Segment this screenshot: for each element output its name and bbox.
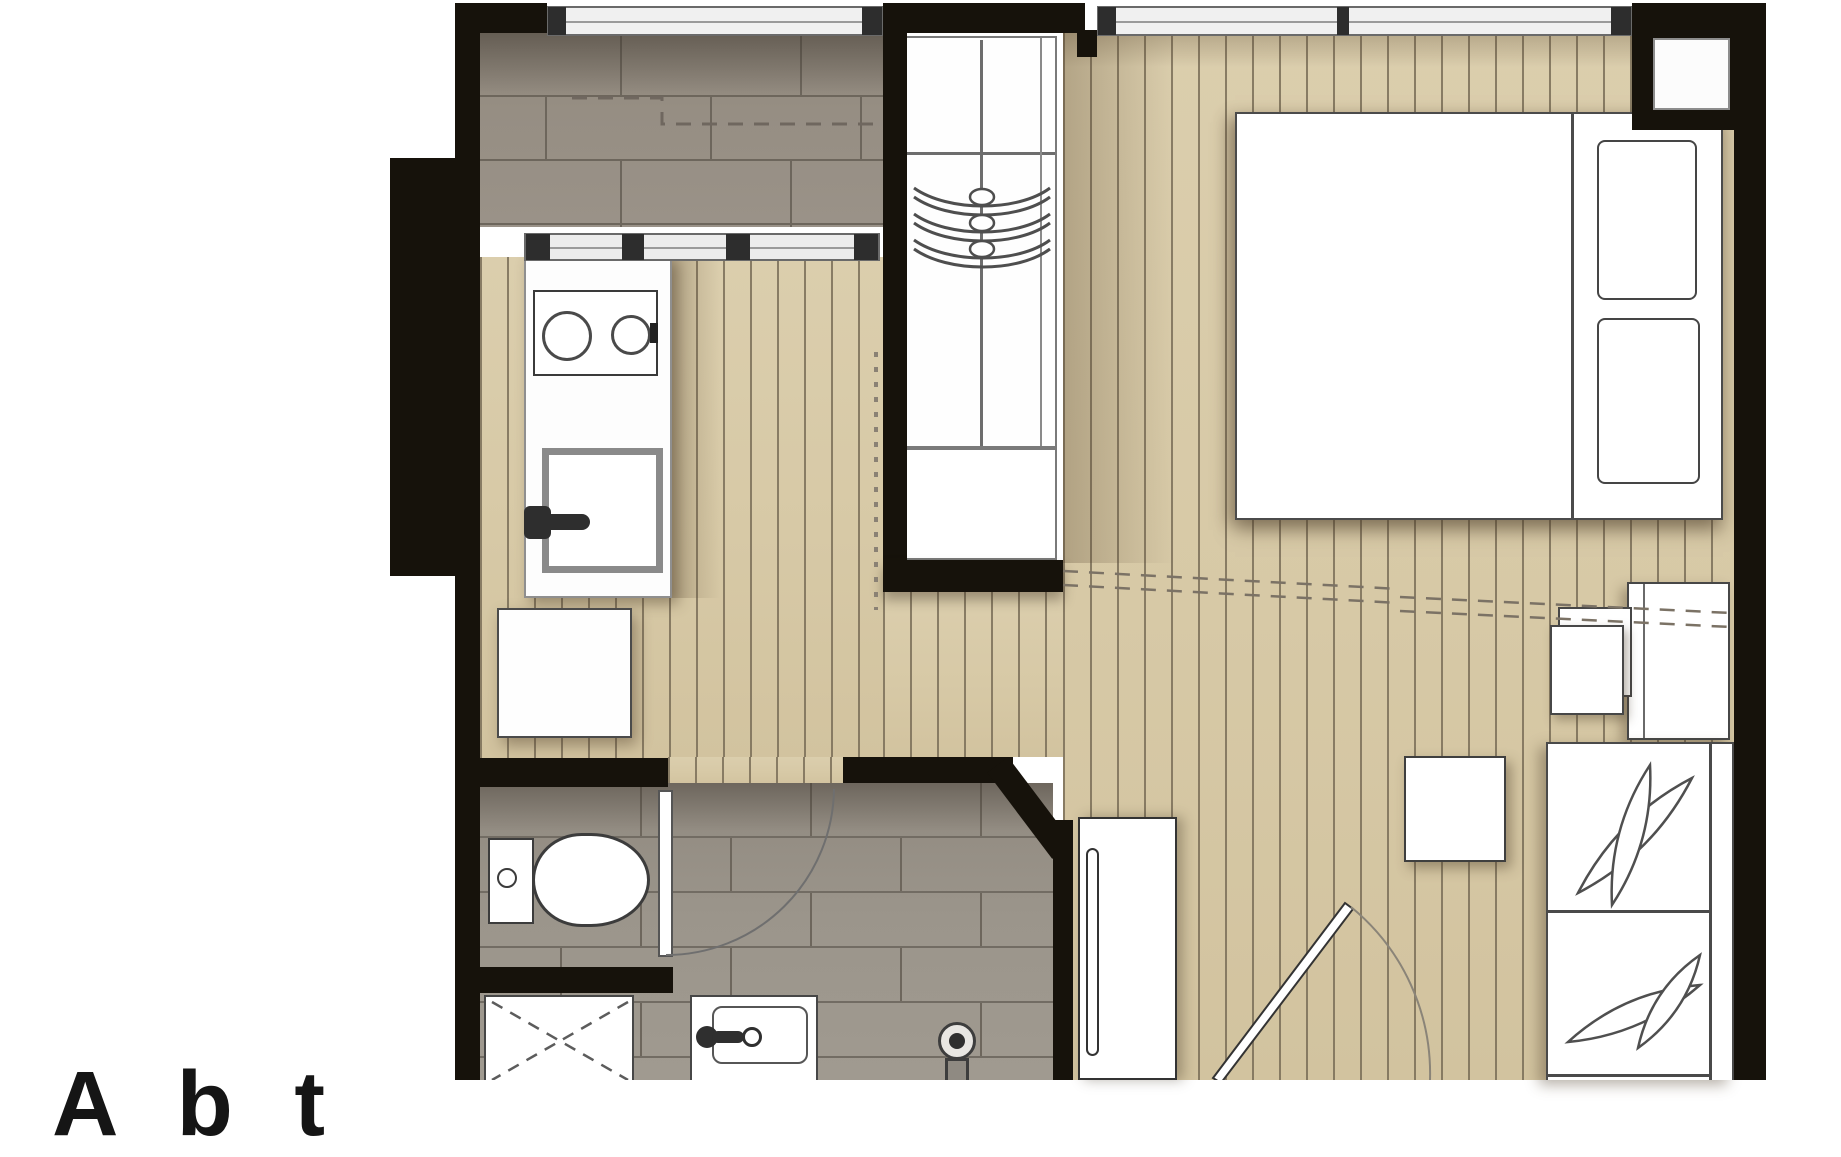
- detail-overlay: [0, 0, 1841, 1080]
- shower-cross-icon: [492, 1002, 628, 1080]
- dashed-cabinet-line: [572, 98, 878, 124]
- dashed-ceiling-line: [1063, 571, 1731, 627]
- cutoff-watermark-text: A b t: [52, 1052, 343, 1157]
- entry-door-leaf: [1213, 903, 1353, 1080]
- leaf-cushions-icon: [1568, 765, 1700, 1048]
- bathroom-door-arc: [666, 789, 834, 955]
- entry-door-arc: [1351, 907, 1430, 1080]
- hanger-hooks-icon: [970, 189, 994, 257]
- floorplan-canvas: { "document": { "type": "apartment-floor…: [0, 0, 1841, 1080]
